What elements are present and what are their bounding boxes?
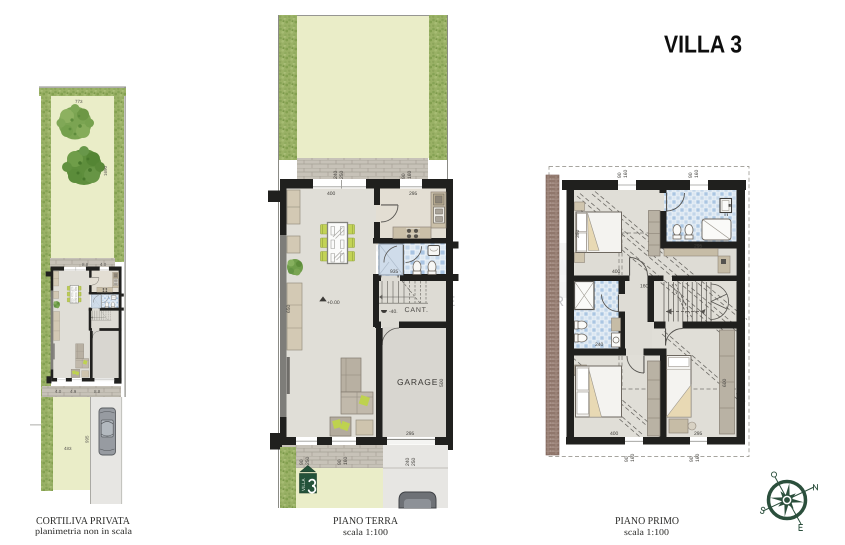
svg-text:500: 500 (439, 378, 445, 387)
svg-text:4.9: 4.9 (70, 389, 77, 394)
svg-text:250: 250 (305, 456, 311, 465)
svg-text:240: 240 (595, 342, 604, 348)
svg-text:160: 160 (343, 456, 349, 465)
svg-text:295: 295 (694, 244, 703, 250)
svg-text:-40.: -40. (389, 309, 398, 315)
svg-text:250: 250 (411, 457, 417, 466)
svg-text:160: 160 (623, 169, 629, 178)
svg-text:scala 1:100: scala 1:100 (343, 527, 389, 537)
svg-text:250: 250 (339, 170, 345, 179)
svg-text:+0.00: +0.00 (327, 300, 340, 306)
svg-text:400: 400 (327, 191, 336, 197)
svg-text:160: 160 (407, 170, 413, 179)
svg-text:773: 773 (75, 99, 83, 104)
svg-text:935: 935 (390, 269, 399, 275)
svg-text:995: 995 (85, 435, 90, 443)
svg-text:4.0: 4.0 (100, 262, 107, 267)
svg-text:4.0: 4.0 (55, 389, 62, 394)
svg-text:8.8: 8.8 (94, 389, 101, 394)
svg-text:483: 483 (64, 446, 72, 451)
svg-text:1690: 1690 (103, 165, 108, 176)
svg-text:160: 160 (694, 169, 700, 178)
svg-text:160: 160 (640, 284, 649, 290)
svg-text:650: 650 (286, 304, 292, 313)
svg-text:CANT.: CANT. (405, 307, 429, 314)
svg-text:planimetria non in scala: planimetria non in scala (35, 526, 132, 536)
svg-text:295: 295 (409, 191, 418, 197)
svg-text:VILLA 3: VILLA 3 (664, 32, 742, 59)
svg-text:295: 295 (694, 431, 703, 437)
svg-text:295: 295 (406, 431, 415, 437)
svg-text:400: 400 (612, 269, 621, 275)
svg-text:600: 600 (722, 378, 728, 387)
svg-text:PIANO TERRA: PIANO TERRA (333, 516, 398, 527)
svg-text:8.8: 8.8 (82, 262, 89, 267)
svg-text:390: 390 (575, 229, 581, 238)
svg-text:PIANO PRIMO: PIANO PRIMO (615, 516, 679, 527)
svg-text:GARAGE: GARAGE (397, 377, 438, 387)
svg-text:160: 160 (630, 453, 636, 462)
svg-text:400: 400 (610, 431, 619, 437)
svg-text:scala 1:100: scala 1:100 (624, 527, 670, 537)
svg-text:160: 160 (695, 453, 701, 462)
svg-text:VILLA: VILLA (301, 478, 306, 491)
